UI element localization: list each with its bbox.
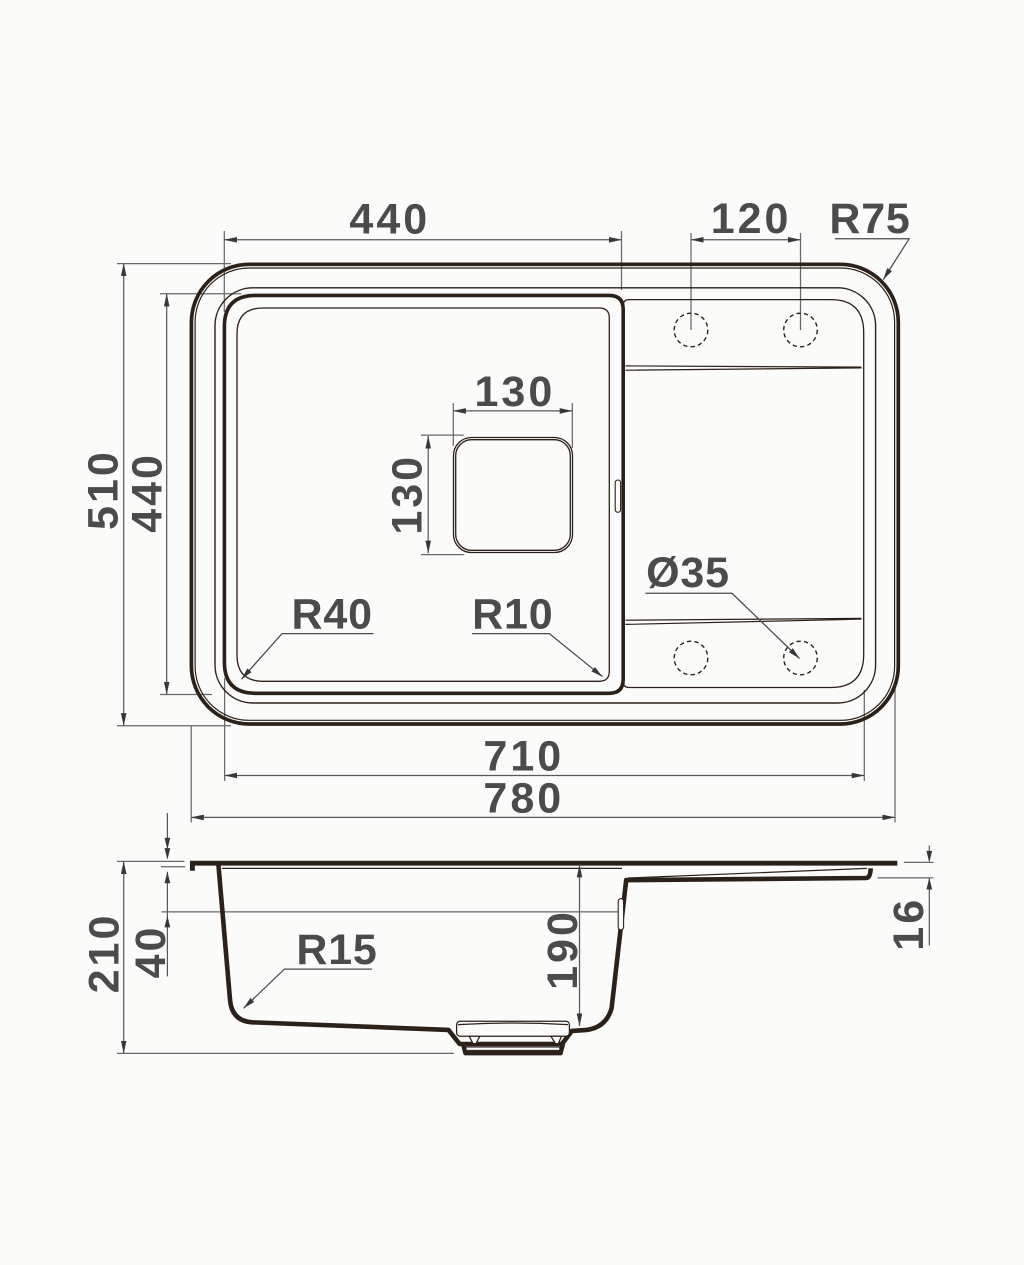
svg-text:440: 440	[123, 452, 171, 533]
svg-text:R10: R10	[472, 591, 553, 639]
svg-text:Ø35: Ø35	[646, 549, 730, 597]
svg-text:190: 190	[539, 909, 587, 990]
svg-text:120: 120	[711, 195, 792, 243]
svg-text:510: 510	[80, 449, 128, 530]
svg-text:710: 710	[483, 733, 564, 781]
svg-text:130: 130	[384, 454, 432, 535]
svg-text:R40: R40	[292, 591, 373, 639]
svg-text:130: 130	[475, 368, 556, 416]
svg-text:16: 16	[885, 897, 933, 951]
svg-text:40: 40	[127, 925, 175, 979]
svg-text:R15: R15	[296, 926, 377, 974]
svg-text:780: 780	[483, 775, 564, 823]
svg-text:440: 440	[349, 195, 430, 243]
svg-text:210: 210	[81, 913, 129, 994]
svg-text:R75: R75	[829, 195, 910, 243]
